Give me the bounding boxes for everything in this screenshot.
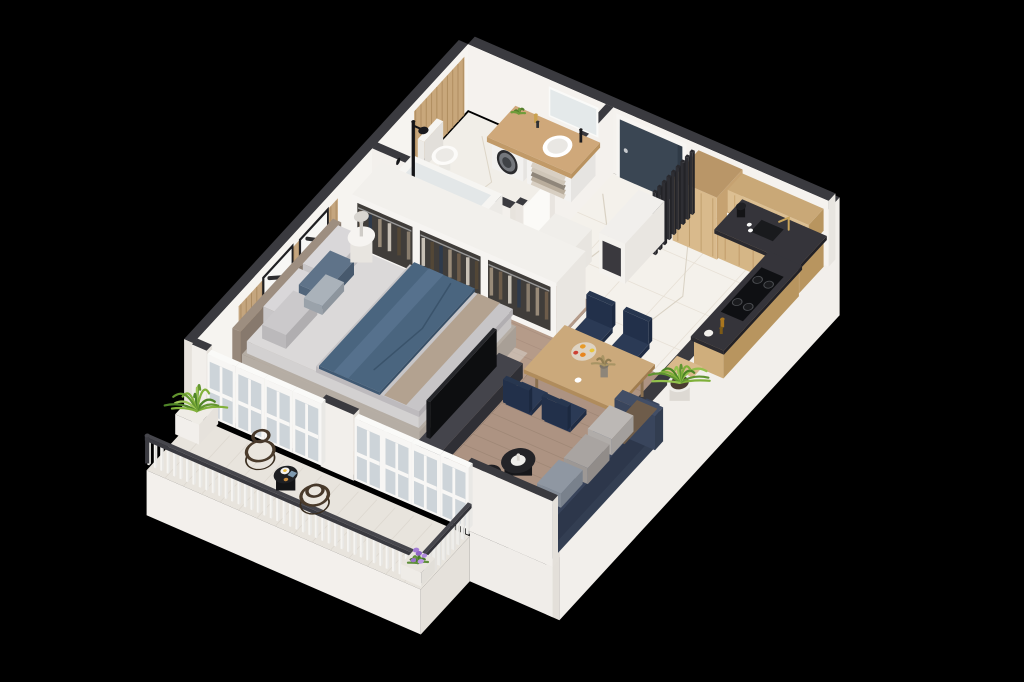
entry-door-frame-left <box>616 114 620 178</box>
floorplan-stage <box>0 0 1024 682</box>
apartment-floorplan-3d-render <box>0 0 1024 682</box>
sw-pier-mid <box>321 395 360 481</box>
